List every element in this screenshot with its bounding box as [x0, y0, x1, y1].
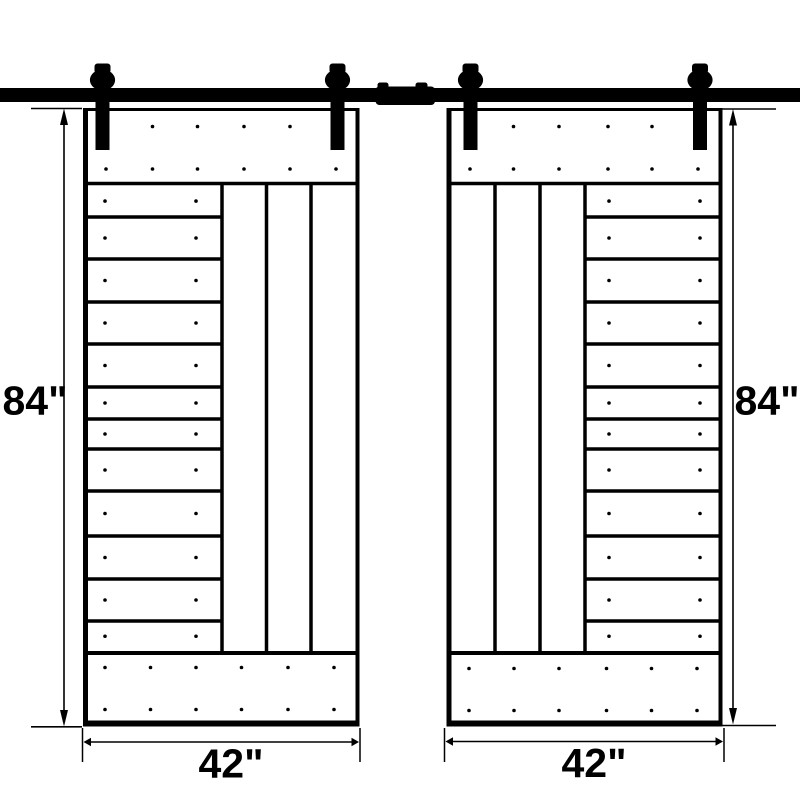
- svg-text:84": 84": [3, 378, 68, 424]
- svg-text:42": 42": [199, 741, 264, 787]
- svg-text:84": 84": [735, 378, 800, 424]
- svg-text:42": 42": [562, 740, 627, 786]
